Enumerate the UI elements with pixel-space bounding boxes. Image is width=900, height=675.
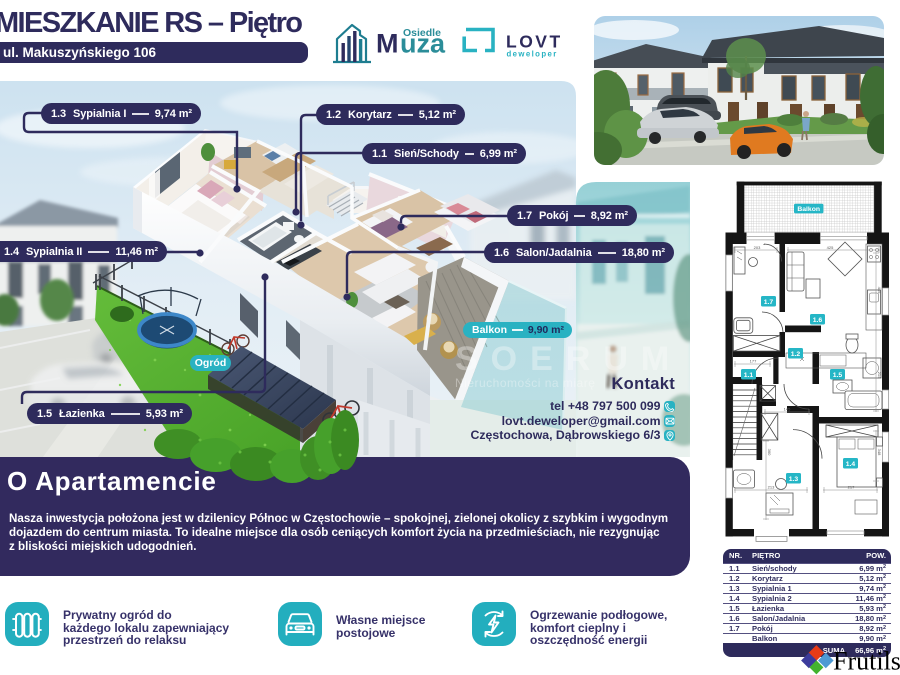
svg-text:217: 217: [848, 485, 855, 490]
svg-text:449: 449: [877, 287, 882, 294]
svg-text:1.5: 1.5: [833, 372, 843, 379]
svg-text:1.2: 1.2: [791, 351, 801, 358]
svg-text:1.3: 1.3: [789, 476, 799, 483]
svg-text:Osiedle: Osiedle: [403, 27, 441, 39]
svg-text:348: 348: [877, 449, 882, 456]
svg-text:360: 360: [767, 449, 772, 456]
svg-text:deweloper: deweloper: [507, 50, 558, 59]
svg-text:213: 213: [768, 485, 775, 490]
svg-text:M: M: [376, 29, 399, 59]
svg-text:425: 425: [827, 245, 834, 250]
svg-text:LOVT: LOVT: [506, 32, 563, 52]
svg-text:214: 214: [877, 372, 882, 379]
svg-text:1.4: 1.4: [846, 461, 856, 468]
svg-text:Balkon: Balkon: [797, 206, 820, 213]
svg-text:1.1: 1.1: [744, 372, 754, 379]
svg-text:145: 145: [784, 407, 791, 412]
svg-text:Frutils: Frutils: [833, 647, 900, 675]
svg-text:1.7: 1.7: [764, 299, 774, 306]
svg-text:177: 177: [750, 359, 757, 364]
svg-text:1.6: 1.6: [813, 317, 823, 324]
svg-text:203: 203: [754, 245, 761, 250]
